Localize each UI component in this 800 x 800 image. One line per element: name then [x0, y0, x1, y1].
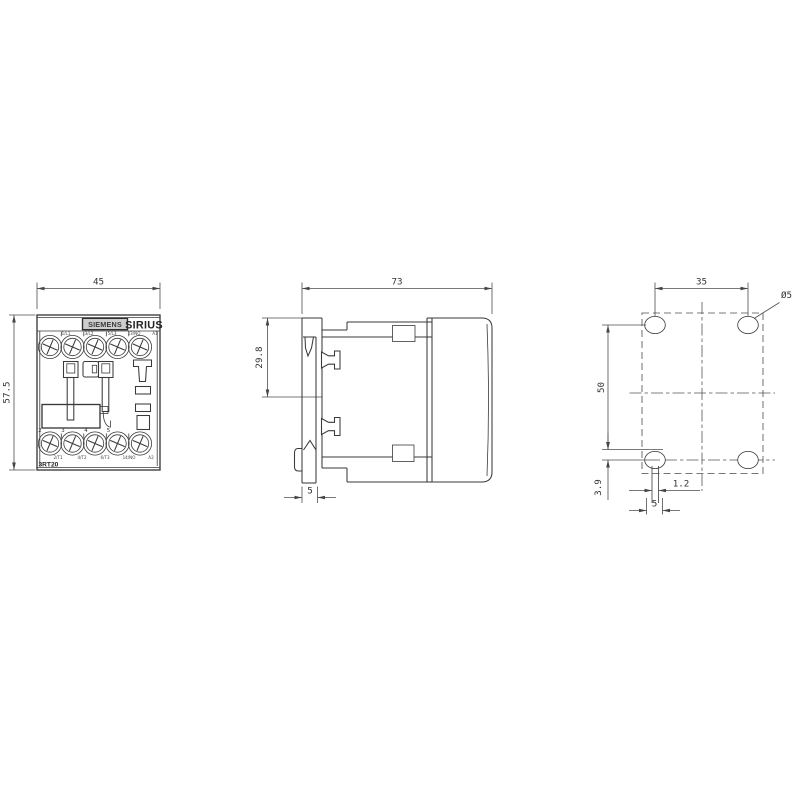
- dim-slot-length: 5: [629, 498, 680, 515]
- hole-dia-label: Ø5: [781, 290, 792, 301]
- terminal-screw: [106, 335, 129, 358]
- hole-dia-callout: Ø5: [753, 290, 793, 320]
- coil-housing: [432, 318, 492, 482]
- terminal-label-top: 13/NO: [128, 331, 141, 336]
- dim-front-width: 45: [37, 277, 160, 310]
- terminal-screw: [38, 432, 61, 455]
- pole-number: 2: [38, 428, 41, 434]
- terminal-screw: [61, 432, 84, 455]
- din-clip-foot: [295, 449, 303, 472]
- sirius-label: SIRIUS: [125, 320, 163, 332]
- front-view: 45 57.5 SIEMENS SIRIUS 1/L1 3/L2 5/L3 13…: [2, 277, 163, 471]
- siemens-logo: SIEMENS: [88, 320, 122, 329]
- side-view: 73 29.8 5: [254, 277, 492, 504]
- terminal-screw: [128, 432, 151, 455]
- terminal-label-top: 5/L3: [108, 331, 117, 336]
- dim-text-slot-length: 5: [652, 499, 658, 510]
- terminal-screw: [128, 335, 151, 358]
- mounting-hole: [645, 316, 666, 333]
- dim-text-pitch-v: 50: [596, 382, 607, 393]
- front-mechanism-details: [42, 360, 152, 430]
- terminal-screw: [83, 432, 106, 455]
- dim-text-depth: 73: [391, 277, 402, 288]
- mounting-hole: [738, 451, 759, 468]
- mounting-hole: [738, 316, 759, 333]
- contactor-dimension-drawing: 45 57.5 SIEMENS SIRIUS 1/L1 3/L2 5/L3 13…: [0, 0, 800, 800]
- dim-text-width: 45: [93, 277, 104, 288]
- snap-hook: [322, 418, 341, 436]
- dim-hole-pitch-v: 50: [596, 325, 663, 450]
- dim-side-clip: 29.8: [254, 318, 322, 397]
- terminal-label-top: 3/L2: [85, 331, 94, 336]
- nameplate-window: [42, 405, 100, 429]
- terminal-screws-top: [38, 335, 151, 358]
- terminal-screw: [106, 432, 129, 455]
- dim-text-slot-offset: 3.9: [593, 479, 604, 496]
- terminal-label-top: 1/L1: [62, 331, 71, 336]
- dim-hole-pitch-h: 35: [655, 277, 748, 335]
- terminal-screws-bottom: [38, 432, 151, 455]
- side-profile: [295, 318, 493, 483]
- terminal-label-top: A1: [152, 331, 158, 336]
- drawing-canvas: 45 57.5 SIEMENS SIRIUS 1/L1 3/L2 5/L3 13…: [0, 0, 800, 800]
- pole-number: 4: [84, 428, 88, 434]
- dim-slot-width: 1.2: [629, 466, 700, 503]
- terminal-label-bottom: 4/T2: [77, 455, 86, 460]
- dim-text-height: 57.5: [2, 381, 13, 403]
- drilling-view: 35 Ø5 50 3.9: [593, 277, 792, 515]
- dim-front-height: 57.5: [2, 315, 36, 470]
- snap-hook: [322, 351, 341, 369]
- terminal-label-bottom: 14/NO: [123, 455, 136, 460]
- dim-side-depth: 73: [302, 277, 492, 315]
- dim-text-foot: 5: [307, 486, 313, 497]
- din-clip-latch: [305, 337, 314, 356]
- pole-number: 3: [61, 428, 64, 434]
- dim-text-clip: 29.8: [254, 346, 265, 368]
- terminal-label-bottom: 6/T3: [100, 455, 109, 460]
- terminal-screw: [83, 335, 106, 358]
- terminal-label-bottom: 2/T1: [53, 455, 62, 460]
- dim-text-pitch-h: 35: [696, 277, 707, 288]
- terminal-screw: [38, 335, 61, 358]
- terminal-label-bottom: A2: [148, 455, 154, 460]
- terminal-screw: [61, 335, 84, 358]
- terminal-separators-bottom: [61, 434, 129, 439]
- pole-number: 5: [107, 428, 110, 434]
- dim-side-foot: 5: [284, 486, 336, 504]
- dim-text-slot-width: 1.2: [673, 479, 690, 490]
